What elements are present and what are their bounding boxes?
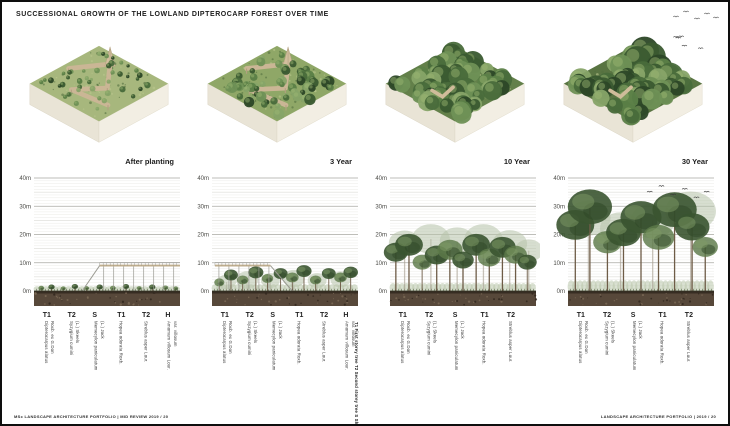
svg-text:0m: 0m: [557, 289, 565, 295]
species-layer-code: S: [453, 312, 465, 319]
svg-text:40m: 40m: [197, 176, 209, 182]
species-layer-code: S: [270, 312, 282, 319]
species-column: T2Syzygium cumini(L.) Skeels: [246, 312, 258, 399]
stage-label: 10 Year: [370, 157, 540, 168]
species-column: T1Dipterocarpus alatusRoxb. ex G.Don: [577, 312, 589, 399]
species-layer-code: S: [631, 312, 643, 319]
svg-text:30m: 30m: [197, 204, 209, 210]
svg-text:40m: 40m: [19, 176, 31, 182]
species-name: Amomum villosum Lour.var. villosum: [165, 321, 177, 399]
species-column: SMemecylon paniculatum(L.) Jack: [92, 312, 104, 399]
stage-panel: 10 Year 0m10m20m30m40m T1Dipterocarpus a…: [370, 27, 540, 406]
species-column: T2Syzygium cumini(L.) Skeels: [68, 312, 80, 399]
species-column: T2Streblus asper Lour.: [685, 312, 693, 399]
species-table: T1Dipterocarpus alatusRoxb. ex G.DonT2Sy…: [14, 310, 184, 406]
svg-text:30m: 30m: [553, 204, 565, 210]
stage-label: 3 Year: [192, 157, 362, 168]
svg-text:30m: 30m: [19, 204, 31, 210]
species-layer-code: T1: [117, 312, 125, 319]
species-layer-code: T2: [603, 312, 615, 319]
species-column: T2Streblus asper Lour.: [142, 312, 150, 399]
stage-label: 30 Year: [548, 157, 718, 168]
species-layer-code: T1: [221, 312, 233, 319]
species-name: Memecylon paniculatum(L.) Jack: [92, 321, 104, 399]
species-name: Memecylon paniculatum(L.) Jack: [631, 321, 643, 399]
species-layer-code: T1: [295, 312, 303, 319]
page-title: SUCCESSIONAL GROWTH OF THE LOWLAND DIPTE…: [16, 11, 329, 18]
species-layer-code: T1: [659, 312, 667, 319]
species-layer-code: T2: [246, 312, 258, 319]
species-column: T2Syzygium cumini(L.) Skeels: [603, 312, 615, 399]
species-column: T2Syzygium cumini(L.) Skeels: [425, 312, 437, 399]
svg-text:20m: 20m: [197, 233, 209, 239]
section-elevation-chart: 0m10m20m30m40m: [370, 168, 540, 310]
species-name: Dipterocarpus alatusRoxb. ex G.Don: [399, 321, 411, 399]
svg-text:40m: 40m: [553, 176, 565, 182]
species-layer-code: H: [165, 312, 177, 319]
species-column: T2Streblus asper Lour.: [507, 312, 515, 399]
species-column: HAmomum villosum Lour.var. villosum: [165, 312, 177, 399]
species-layer-code: T2: [320, 312, 328, 319]
svg-text:0m: 0m: [379, 289, 387, 295]
species-name: Hopea odorata Roxb.: [295, 321, 301, 399]
species-name: Dipterocarpus alatusRoxb. ex G.Don: [577, 321, 589, 399]
species-layer-code: T2: [68, 312, 80, 319]
board-page: SUCCESSIONAL GROWTH OF THE LOWLAND DIPTE…: [0, 0, 730, 426]
species-name: Streblus asper Lour.: [685, 321, 691, 399]
footer-right: LANDSCAPE ARCHITECTURE PORTFOLIO | 2019 …: [601, 414, 716, 419]
species-layer-code: T1: [577, 312, 589, 319]
stage-panel: 30 Year 0m10m20m30m40m T1Dipterocarpus a…: [548, 27, 718, 406]
svg-text:20m: 20m: [19, 233, 31, 239]
svg-text:0m: 0m: [201, 289, 209, 295]
svg-text:20m: 20m: [375, 233, 387, 239]
species-name: Syzygium cumini(L.) Skeels: [603, 321, 615, 399]
svg-text:0m: 0m: [23, 289, 31, 295]
svg-text:40m: 40m: [375, 176, 387, 182]
species-column: T1Hopea odorata Roxb.: [117, 312, 125, 399]
isometric-forest-view: [14, 27, 184, 157]
footer-left: MSc LANDSCAPE ARCHITECTURE PORTFOLIO | M…: [14, 414, 168, 419]
stage-panels-row: After planting 0m10m20m30m40m T1Dipteroc…: [14, 27, 720, 406]
isometric-forest-view: [548, 27, 718, 157]
svg-text:30m: 30m: [375, 204, 387, 210]
species-layer-code: H: [343, 312, 355, 319]
section-elevation-chart: 0m10m20m30m40m: [548, 168, 718, 310]
species-layer-code: T2: [685, 312, 693, 319]
species-layer-code: T2: [142, 312, 150, 319]
stage-panel: 3 Year 0m10m20m30m40m T1Dipterocarpus al…: [192, 27, 362, 406]
species-name: Streblus asper Lour.: [142, 321, 148, 399]
stage-label: After planting: [14, 157, 184, 168]
species-column: T1Dipterocarpus alatusRoxb. ex G.Don: [399, 312, 411, 399]
species-layer-code: T1: [399, 312, 411, 319]
species-name: Syzygium cumini(L.) Skeels: [246, 321, 258, 399]
species-layer-code: T1: [481, 312, 489, 319]
svg-text:10m: 10m: [553, 261, 565, 267]
species-column: T1Dipterocarpus alatusRoxb. ex G.Don: [221, 312, 233, 399]
species-column: SMemecylon paniculatum(L.) Jack: [631, 312, 643, 399]
species-name: Memecylon paniculatum(L.) Jack: [453, 321, 465, 399]
species-column: T1Hopea odorata Roxb.: [295, 312, 303, 399]
species-column: SMemecylon paniculatum(L.) Jack: [453, 312, 465, 399]
layer-key-note: T1 First storey tree T2 Second storey tr…: [354, 322, 359, 408]
svg-text:10m: 10m: [375, 261, 387, 267]
species-name: Hopea odorata Roxb.: [659, 321, 665, 399]
species-column: T1Hopea odorata Roxb.: [659, 312, 667, 399]
species-name: Streblus asper Lour.: [507, 321, 513, 399]
species-layer-code: T2: [425, 312, 437, 319]
species-name: Hopea odorata Roxb.: [117, 321, 123, 399]
svg-text:10m: 10m: [197, 261, 209, 267]
species-layer-code: T1: [43, 312, 55, 319]
isometric-forest-view: [192, 27, 362, 157]
species-column: SMemecylon paniculatum(L.) Jack: [270, 312, 282, 399]
species-column: T1Hopea odorata Roxb.: [481, 312, 489, 399]
species-column: T2Streblus asper Lour.: [320, 312, 328, 399]
section-elevation-chart: 0m10m20m30m40m: [192, 168, 362, 310]
species-layer-code: S: [92, 312, 104, 319]
species-table: T1Dipterocarpus alatusRoxb. ex G.DonT2Sy…: [370, 310, 540, 406]
species-layer-code: T2: [507, 312, 515, 319]
flying-birds-icon: [670, 6, 722, 26]
species-name: Memecylon paniculatum(L.) Jack: [270, 321, 282, 399]
species-name: Dipterocarpus alatusRoxb. ex G.Don: [43, 321, 55, 399]
species-table: T1Dipterocarpus alatusRoxb. ex G.DonT2Sy…: [192, 310, 362, 406]
isometric-forest-view: [370, 27, 540, 157]
svg-text:10m: 10m: [19, 261, 31, 267]
species-name: Syzygium cumini(L.) Skeels: [425, 321, 437, 399]
species-table: T1Dipterocarpus alatusRoxb. ex G.DonT2Sy…: [548, 310, 718, 406]
species-name: Hopea odorata Roxb.: [481, 321, 487, 399]
species-column: T1Dipterocarpus alatusRoxb. ex G.Don: [43, 312, 55, 399]
species-name: Dipterocarpus alatusRoxb. ex G.Don: [221, 321, 233, 399]
species-name: Streblus asper Lour.: [320, 321, 326, 399]
species-name: Syzygium cumini(L.) Skeels: [68, 321, 80, 399]
section-elevation-chart: 0m10m20m30m40m: [14, 168, 184, 310]
stage-panel: After planting 0m10m20m30m40m T1Dipteroc…: [14, 27, 184, 406]
